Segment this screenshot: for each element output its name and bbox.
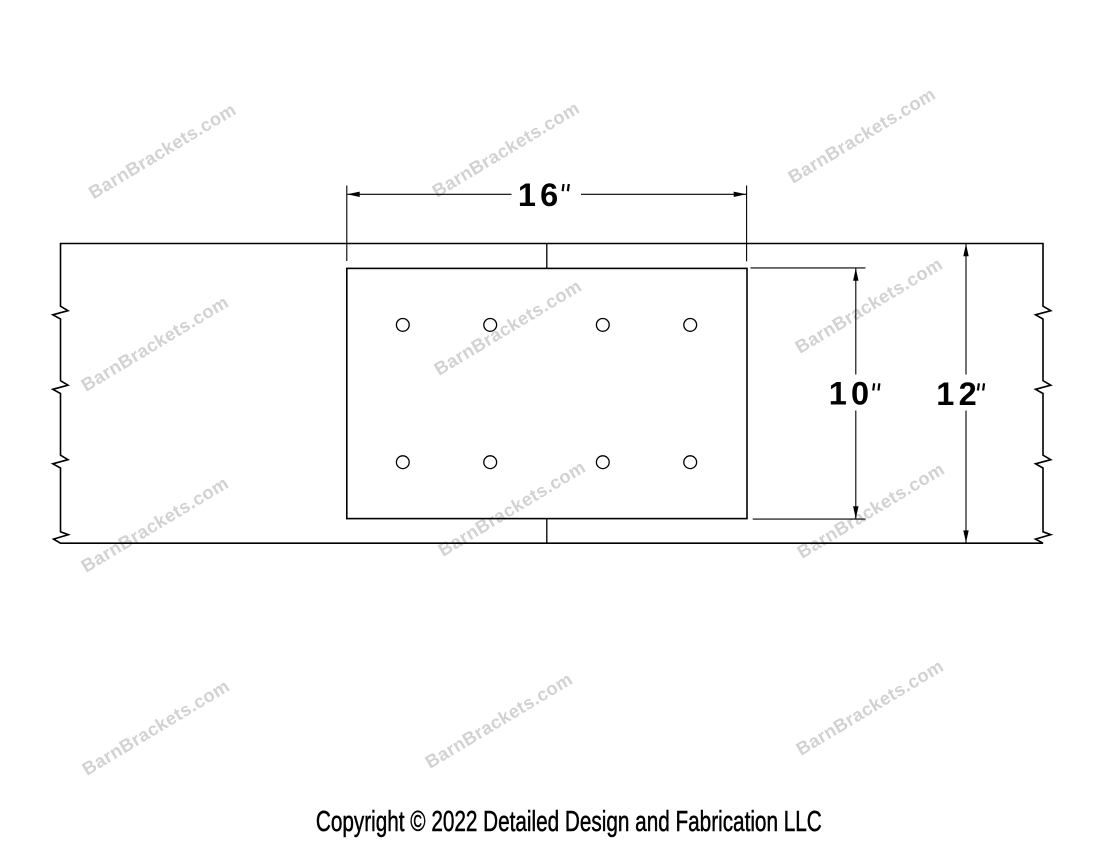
svg-text:16: 16 [518,177,563,213]
svg-text:Copyright © 2022 Detailed Desi: Copyright © 2022 Detailed Design and Fab… [316,806,822,838]
svg-text:12: 12 [936,376,981,412]
svg-text:10: 10 [829,376,874,412]
